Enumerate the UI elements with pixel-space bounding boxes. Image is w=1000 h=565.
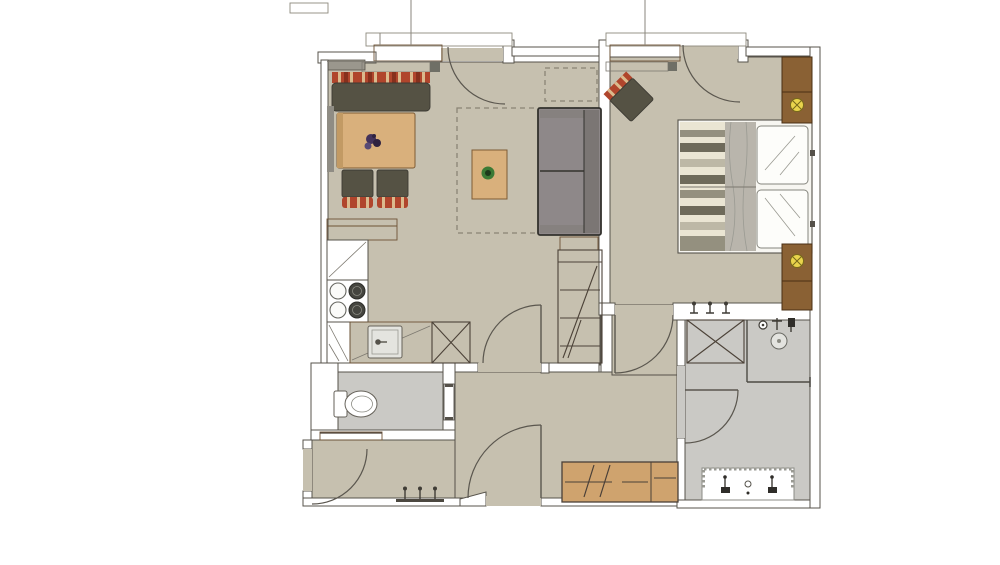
burner-4 — [349, 302, 365, 318]
wall-hall-west-stub-a — [303, 440, 312, 449]
burner-2 — [330, 302, 346, 318]
burner-3 — [349, 283, 365, 299]
kitchen-sink — [368, 326, 402, 358]
wall-stub-bedroom-door — [599, 303, 615, 315]
wall-bath-south — [677, 500, 810, 508]
double-bed — [678, 120, 812, 253]
toilet — [334, 391, 377, 417]
window-band-bedroom — [746, 47, 810, 56]
opening-south-door — [486, 496, 541, 506]
sofa-armrest-top — [540, 110, 584, 118]
floor-plan — [0, 0, 1000, 565]
sofa-backrest — [584, 110, 599, 233]
shower-fixture-icon — [788, 318, 795, 327]
vanity-double-washbasin — [702, 468, 794, 500]
dining-bench — [332, 72, 430, 111]
balcony-ledge-living — [366, 33, 512, 46]
entry-hall-floor — [312, 440, 455, 500]
sideboard — [562, 462, 678, 502]
bed-striped-duvet — [680, 122, 725, 251]
lamp-symbol-1 — [791, 99, 804, 112]
opening-balcony-living — [441, 48, 503, 61]
opening-balcony-bedroom — [681, 46, 738, 59]
bench-seat — [332, 83, 430, 111]
dining-chair-2 — [377, 170, 408, 208]
lamp-symbol-2 — [791, 255, 804, 268]
pillow-1 — [757, 126, 808, 184]
sofa — [538, 108, 601, 235]
wardrobe-lower — [782, 244, 812, 310]
wall-anchor-1 — [810, 150, 815, 156]
radiator-valve-bedroom — [668, 62, 677, 71]
wall-south-living-b — [549, 363, 599, 372]
sofa-armrest-bottom — [540, 225, 584, 233]
dining-table — [337, 113, 415, 168]
opening-entry-door — [303, 449, 312, 491]
balcony-sill-living — [374, 45, 442, 61]
wc-sliding-door — [444, 384, 454, 420]
dining-chair-1 — [342, 170, 373, 208]
balcony-ledge-bedroom — [606, 33, 746, 46]
burner-1 — [330, 283, 346, 299]
wall-anchor-2 — [810, 221, 815, 227]
dining-table-edge — [337, 113, 343, 168]
wall-stub-door — [541, 363, 549, 373]
wall-wc-south — [311, 430, 455, 440]
coffee-table — [472, 150, 507, 199]
window-band-living — [512, 47, 600, 56]
pillow-2 — [757, 190, 808, 248]
opening-bath-door — [677, 366, 685, 438]
coat-rail — [396, 499, 444, 502]
opening-bedroom-door — [615, 305, 673, 315]
wall-bath-west-a — [677, 320, 685, 366]
floor-plan-canvas — [0, 0, 1000, 565]
neighbor-slab — [290, 3, 328, 13]
stove — [327, 280, 368, 322]
opening-living-door — [478, 363, 541, 372]
radiator-valve-living — [430, 62, 440, 72]
bench-backrest — [327, 106, 334, 172]
wardrobe-upper — [782, 57, 812, 123]
